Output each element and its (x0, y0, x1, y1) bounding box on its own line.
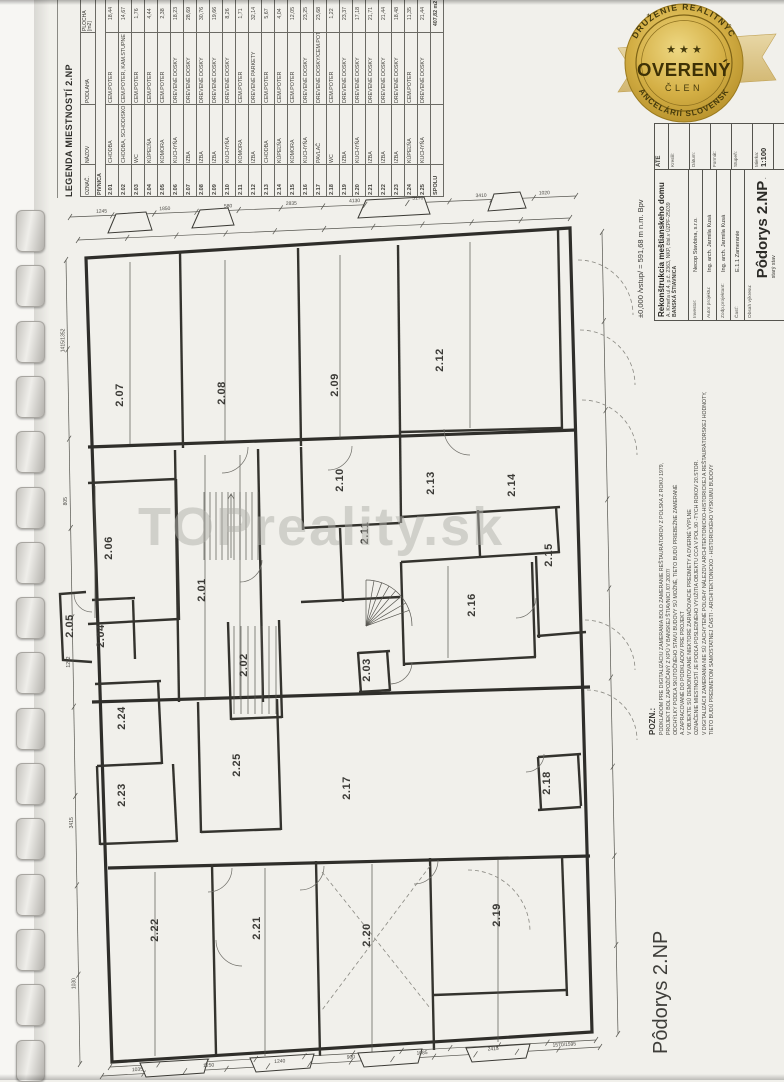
wall-inner (228, 622, 231, 720)
door-swing-arc (390, 662, 412, 684)
wall-inner (434, 990, 567, 995)
dashed-arc (322, 872, 430, 1008)
window-bay (192, 208, 234, 228)
dimension-label: 1035 (132, 1067, 144, 1074)
dimension-label: 1245 (96, 208, 108, 214)
wall-inner (173, 764, 177, 842)
room-label-2.04: 2.04 (95, 624, 107, 648)
dashed-arc (578, 260, 633, 315)
room-label-2.15: 2.15 (543, 543, 555, 566)
wall-inner (538, 754, 581, 757)
wall-inner (298, 248, 301, 446)
room-label-2.12: 2.12 (434, 348, 446, 371)
dimension-label: 805 (63, 497, 69, 506)
wall-inner (398, 245, 401, 523)
wall-inner (316, 861, 320, 1056)
room-label-2.08: 2.08 (216, 381, 228, 404)
wall-inner (279, 620, 282, 718)
room-label-2.23: 2.23 (116, 783, 128, 806)
wall-inner (537, 632, 586, 636)
room-label-2.01: 2.01 (196, 578, 208, 601)
dimension-label: 4130 (349, 198, 361, 204)
room-label-2.07: 2.07 (114, 383, 126, 406)
room-label-2.19: 2.19 (491, 903, 503, 926)
wall-inner (558, 230, 562, 430)
wall-inner (95, 681, 161, 684)
dimension-label: 2835 (286, 201, 298, 207)
dimension-label: 1415/1352 (60, 328, 66, 352)
door-swing-arc (300, 866, 324, 890)
dashed-arc (322, 866, 430, 1010)
room-label-2.14: 2.14 (506, 473, 518, 497)
wall-inner (198, 702, 201, 833)
dashed-arc (580, 330, 635, 385)
room-label-2.13: 2.13 (425, 471, 437, 494)
wall-inner (562, 856, 567, 996)
dimension-label: 2415 (488, 1046, 500, 1053)
dimension-label: 5170 (412, 195, 424, 201)
wall-inner (403, 657, 536, 664)
wall-inner (556, 507, 559, 553)
door-swing-arc (216, 940, 242, 966)
dimension-label: 1850 (159, 206, 171, 212)
room-label-2.05: 2.05 (64, 614, 76, 637)
wall-inner (538, 807, 581, 810)
room-label-2.02: 2.02 (238, 653, 250, 676)
room-label-2.17: 2.17 (341, 776, 353, 799)
door-swing-arc (240, 560, 262, 582)
room-label-2.20: 2.20 (361, 923, 373, 946)
dimension-label: 1570/1595 (552, 1041, 576, 1048)
room-label-2.16: 2.16 (466, 593, 478, 616)
dimension-label: 1030 (72, 978, 78, 989)
window-bay (488, 192, 526, 211)
wall-inner (231, 717, 282, 719)
wall-inner (133, 600, 135, 659)
wall-inner (88, 479, 176, 483)
dimension-label: 1240 (274, 1058, 286, 1065)
wall-outer (92, 687, 590, 702)
wall-inner (430, 858, 434, 1050)
room-label-2.24: 2.24 (116, 706, 128, 730)
room-label-2.10: 2.10 (334, 468, 346, 491)
room-label-2.22: 2.22 (149, 918, 161, 941)
dimension-line (602, 232, 618, 1034)
dimension-label: 3410 (475, 193, 487, 199)
wall-inner (158, 681, 162, 764)
wall-inner (536, 556, 539, 638)
wall-outer (88, 430, 576, 447)
door-swing-arc (414, 860, 438, 884)
dimension-label: 1252 (66, 656, 72, 667)
room-label-2.06: 2.06 (103, 536, 115, 559)
room-label-2.18: 2.18 (541, 771, 553, 794)
door-swing-arc (74, 594, 92, 612)
room-label-2.09: 2.09 (329, 373, 341, 396)
door-swing-arc (222, 447, 248, 473)
wall-inner (301, 597, 400, 602)
wall-inner (212, 864, 216, 1054)
wall-inner (180, 252, 183, 448)
wall-inner (97, 766, 100, 845)
wall-inner (387, 650, 390, 691)
door-swing-arc (328, 446, 352, 470)
spiral-stair-line (366, 603, 406, 626)
dimension-label: 580 (224, 203, 233, 209)
dimension-label: 900 (347, 1054, 356, 1060)
wall-inner (97, 763, 162, 766)
dimension-label: 1020 (539, 190, 551, 196)
dimension-label: 3415 (69, 817, 75, 828)
wall-outer (86, 228, 592, 1062)
window-bay (358, 1049, 422, 1067)
dashed-arc (582, 400, 637, 455)
room-label-2.03: 2.03 (361, 658, 373, 681)
wall-inner (578, 754, 581, 806)
room-label-2.21: 2.21 (251, 916, 263, 939)
wall-inner (100, 841, 177, 844)
scanned-floorplan-page: { "page": { "watermark": "TOPreality.sk"… (0, 0, 784, 1080)
wall-inner (277, 699, 281, 830)
wall-inner (358, 651, 390, 653)
wall-outer (108, 856, 590, 868)
room-label-2.25: 2.25 (231, 753, 243, 776)
window-bay (140, 1059, 208, 1077)
dimension-label: 1250 (203, 1062, 215, 1069)
watermark: TOPreality.sk (138, 496, 504, 558)
wall-inner (201, 829, 281, 832)
dimension-label: 1085 (416, 1050, 428, 1057)
wall-inner (401, 562, 404, 666)
